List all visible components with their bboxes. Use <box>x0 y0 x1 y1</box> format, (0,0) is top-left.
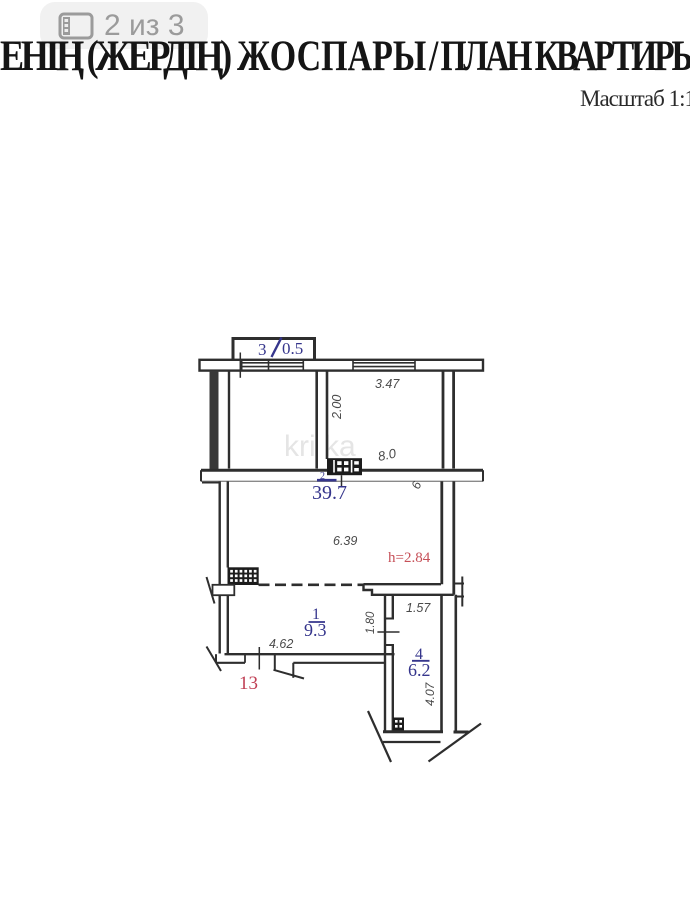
svg-text:2.00: 2.00 <box>330 395 344 420</box>
svg-text:8.0: 8.0 <box>377 445 399 464</box>
svg-text:h=2.84: h=2.84 <box>388 550 431 566</box>
svg-text:3: 3 <box>258 340 267 359</box>
svg-text:39.7: 39.7 <box>312 482 347 504</box>
svg-text:3.47: 3.47 <box>375 377 400 391</box>
svg-text:13: 13 <box>239 673 258 694</box>
svg-text:4.62: 4.62 <box>269 637 293 651</box>
svg-text:1.80: 1.80 <box>365 611 377 634</box>
svg-text:0.5: 0.5 <box>282 339 303 358</box>
svg-text:kri ka: kri ka <box>284 430 356 463</box>
svg-text:6.2: 6.2 <box>408 660 431 680</box>
svg-text:1.57: 1.57 <box>406 601 431 615</box>
svg-text:6.39: 6.39 <box>333 534 357 548</box>
svg-text:4.07: 4.07 <box>423 681 437 706</box>
svg-text:9.3: 9.3 <box>304 620 327 640</box>
